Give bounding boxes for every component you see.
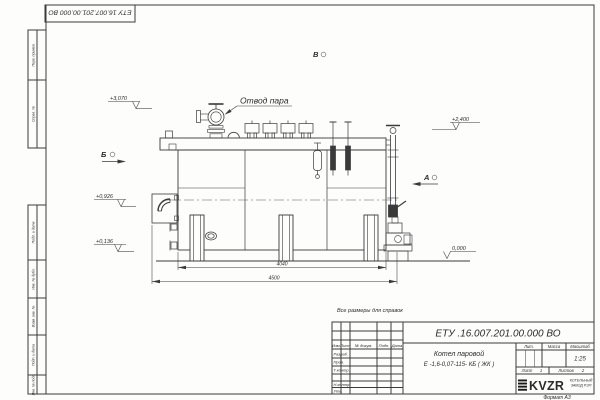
margin-label-perv-primen: Перв. примен. — [32, 43, 36, 66]
tb-row-tcontr: Т.контр. — [334, 368, 350, 373]
top-designation-stamp: ЕТУ 16.007.201.00.000 ВО — [45, 5, 135, 22]
dim-4040-text: 4040 — [276, 262, 287, 268]
tb-designation: ЕТУ .16.007.201.00.000 ВО — [435, 329, 560, 340]
margin-label-podp-data-1: Подп. и дата — [32, 221, 36, 243]
margin-label-vzam-inv: Взам. инв. № — [32, 305, 36, 327]
company-line1: КОТЕЛЬНЫЙ — [570, 379, 593, 383]
callout-steam-outlet-text: Отвод пара — [240, 96, 289, 106]
tb-name-line2: Е -1,6-0,07-115- КБ ( ЖК ) — [424, 362, 494, 368]
dimensions: 4040 4500 — [152, 225, 397, 284]
format-label: Формат А3 — [543, 395, 571, 400]
elevation-2400: +2,400 — [432, 117, 480, 130]
elevation-0000-text: 0,000 — [452, 246, 467, 252]
tb-row-ncontr: Н.контр. — [334, 382, 351, 387]
manhole — [206, 232, 217, 240]
logo-bars-icon — [518, 380, 527, 391]
tb-lit-label: Лит. — [523, 344, 534, 349]
rear-pipe-and-pump — [384, 126, 412, 262]
margin-column-labels: Перв. примен. Справ. № Подп. и дата Инв.… — [32, 43, 36, 395]
callout-steam-outlet: Отвод пара — [225, 96, 293, 115]
tb-scale-label: Масштаб — [570, 344, 590, 349]
tb-col-list: Лист — [339, 343, 351, 348]
tb-sheets-num: 2 — [581, 368, 585, 373]
tb-sheets-label: Листов — [557, 368, 574, 373]
dim-4500-text: 4500 — [268, 276, 279, 282]
margin-columns — [28, 30, 46, 394]
logo-text: KVZR — [529, 379, 564, 393]
tb-sheet-label: Лист — [521, 368, 533, 373]
tb-scale-value: 1:25 — [574, 357, 586, 363]
tb-row-razrab: Разраб. — [334, 352, 348, 357]
tb-name-line1: Котел паровой — [434, 350, 484, 358]
tb-massa-label: Масса — [548, 344, 561, 349]
view-v-text: В — [313, 50, 319, 59]
elevation-0136-text: +0,136 — [96, 239, 114, 245]
elevation-2400-text: +2,400 — [452, 117, 470, 123]
burner — [152, 194, 179, 223]
water-column-gauges — [330, 122, 352, 176]
view-v-label: В — [313, 50, 326, 59]
margin-label-inv-dubl: Инв. № дубл. — [32, 268, 36, 290]
margin-label-podp-data-2: Подп. и дата — [32, 344, 36, 366]
elevation-3070-text: +3,070 — [110, 96, 128, 102]
tb-col-podp: Подп. — [379, 343, 390, 348]
view-a-text: А — [423, 173, 429, 182]
boiler-side-view — [152, 104, 470, 261]
elevation-0000: 0,000 — [444, 246, 477, 259]
title-block: ЕТУ .16.007.201.00.000 ВО Котел паровой … — [332, 322, 594, 394]
view-b-label: Б — [101, 150, 126, 164]
drawing-sheet: Перв. примен. Справ. № Подп. и дата Инв.… — [0, 0, 600, 400]
sight-glass-gauge — [314, 143, 322, 178]
tb-row-utv: Утв. — [334, 389, 343, 394]
view-b-text: Б — [101, 150, 107, 159]
top-designation-text: ЕТУ 16.007.201.00.000 ВО — [48, 9, 132, 16]
company-line2: ЗАВОД РЭП — [571, 384, 592, 388]
support-legs — [190, 215, 378, 261]
tb-col-ndoc: № докум. — [355, 343, 373, 348]
tb-sheet-num: 1 — [540, 368, 542, 373]
steam-outlet-valve — [197, 104, 225, 138]
view-a-label: А — [412, 173, 438, 186]
tb-row-prov: Пров. — [334, 360, 345, 365]
elevation-3070: +3,070 — [108, 96, 152, 109]
view-labels: Б А В — [101, 50, 438, 186]
margin-label-inv-podl: Инв. № подл. — [32, 374, 36, 396]
tb-col-data: Дата — [391, 343, 403, 348]
dome — [228, 132, 239, 138]
elevation-0926-text: +0,926 — [96, 194, 114, 200]
top-hatches — [245, 121, 313, 139]
elevation-0136: +0,136 — [94, 239, 134, 252]
company-logo: KVZR КОТЕЛЬНЫЙ ЗАВОД РЭП — [518, 379, 593, 394]
elevation-0926: +0,926 — [94, 194, 136, 207]
reference-note: Все размеры для справок — [337, 308, 403, 314]
left-nozzles — [170, 223, 177, 251]
margin-label-sprav-n: Справ. № — [32, 106, 36, 122]
